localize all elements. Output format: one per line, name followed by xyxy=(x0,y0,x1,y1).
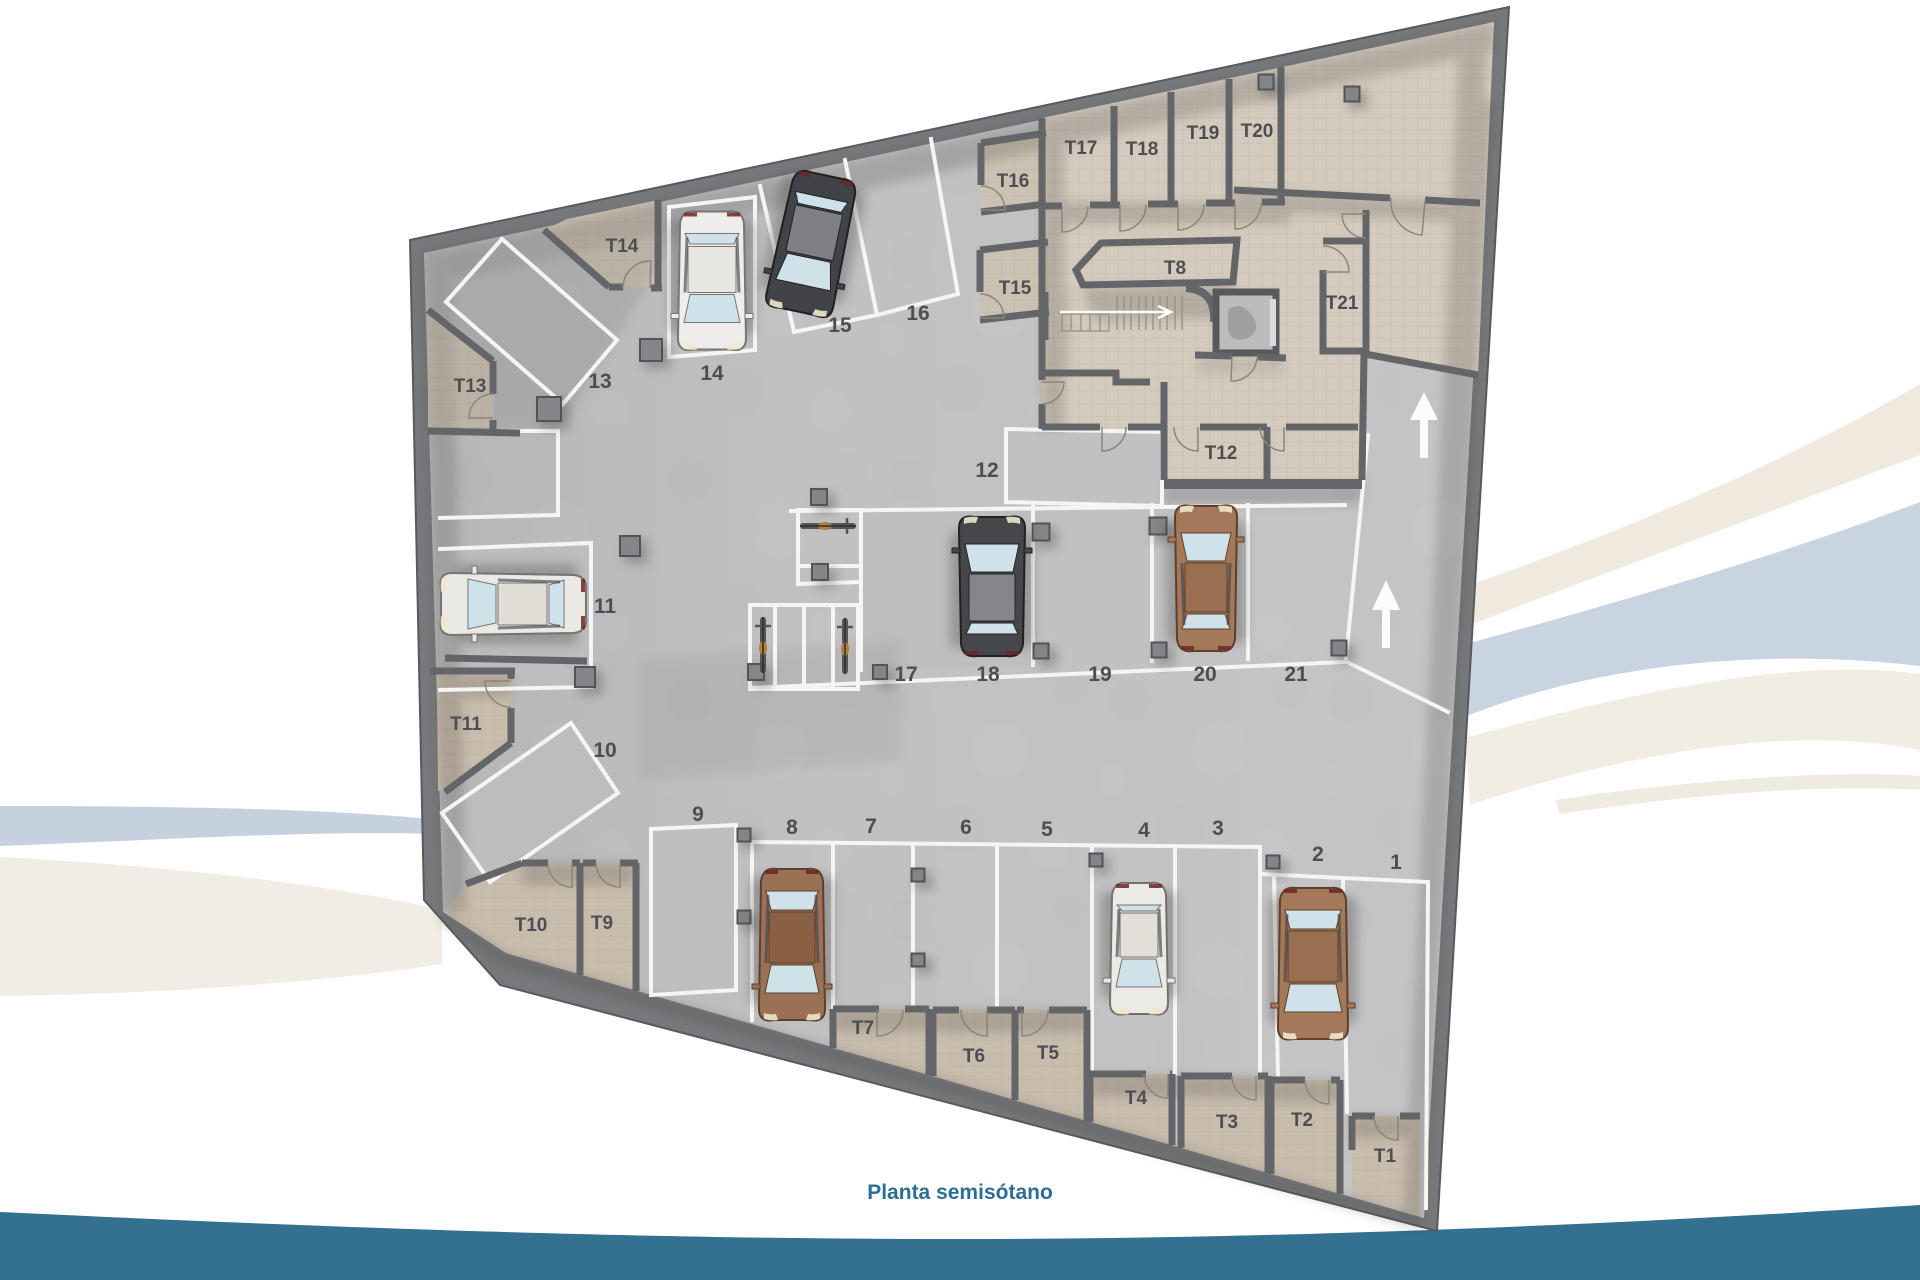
svg-text:T10: T10 xyxy=(515,915,548,936)
svg-text:Planta semisótano: Planta semisótano xyxy=(867,1181,1053,1204)
svg-text:T2: T2 xyxy=(1291,1110,1313,1131)
svg-text:T7: T7 xyxy=(852,1018,874,1039)
svg-text:6: 6 xyxy=(960,816,972,839)
svg-text:T17: T17 xyxy=(1065,138,1098,159)
svg-text:T15: T15 xyxy=(999,278,1032,299)
svg-text:18: 18 xyxy=(976,663,1000,686)
svg-text:12: 12 xyxy=(975,459,998,482)
svg-text:13: 13 xyxy=(588,370,611,393)
svg-text:T14: T14 xyxy=(606,236,639,257)
svg-text:T12: T12 xyxy=(1205,443,1238,464)
svg-text:T18: T18 xyxy=(1126,139,1159,160)
svg-text:15: 15 xyxy=(828,314,852,337)
svg-text:T5: T5 xyxy=(1037,1043,1060,1064)
svg-text:5: 5 xyxy=(1041,818,1053,841)
svg-text:14: 14 xyxy=(700,362,724,385)
svg-text:19: 19 xyxy=(1088,663,1111,686)
svg-text:17: 17 xyxy=(894,663,917,686)
svg-text:4: 4 xyxy=(1138,819,1150,842)
svg-text:T19: T19 xyxy=(1187,123,1220,144)
svg-text:21: 21 xyxy=(1284,663,1308,686)
svg-text:T3: T3 xyxy=(1216,1112,1238,1133)
svg-text:2: 2 xyxy=(1312,843,1324,866)
svg-text:16: 16 xyxy=(906,302,929,325)
svg-text:20: 20 xyxy=(1193,663,1216,686)
svg-text:10: 10 xyxy=(593,739,616,762)
svg-text:3: 3 xyxy=(1212,817,1224,840)
svg-text:T11: T11 xyxy=(450,714,482,735)
svg-text:8: 8 xyxy=(786,816,798,839)
svg-text:T13: T13 xyxy=(454,376,487,397)
svg-text:T21: T21 xyxy=(1326,293,1359,314)
svg-text:9: 9 xyxy=(692,803,704,826)
svg-text:T1: T1 xyxy=(1374,1146,1397,1167)
svg-text:7: 7 xyxy=(865,815,877,838)
svg-text:11: 11 xyxy=(594,595,617,618)
svg-text:1: 1 xyxy=(1390,851,1402,874)
svg-text:T8: T8 xyxy=(1164,258,1186,279)
svg-text:T16: T16 xyxy=(997,171,1030,192)
svg-text:T6: T6 xyxy=(963,1046,985,1067)
svg-text:T4: T4 xyxy=(1125,1088,1148,1109)
svg-text:T20: T20 xyxy=(1241,121,1274,142)
svg-text:T9: T9 xyxy=(591,913,613,934)
